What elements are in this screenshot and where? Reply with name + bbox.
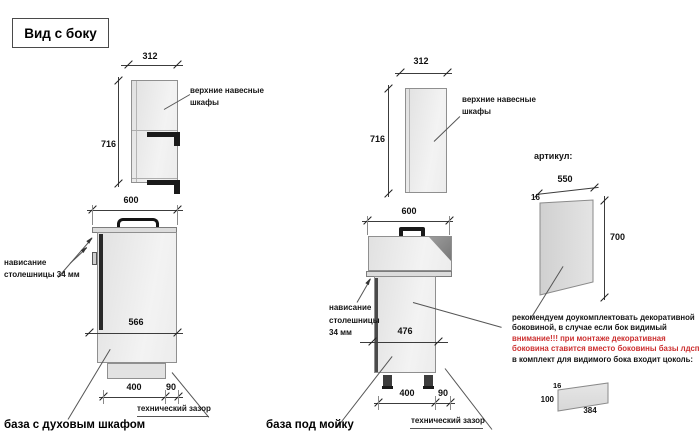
dim-line <box>99 397 183 398</box>
dim-extension <box>178 390 179 404</box>
dim-label-height: 716 <box>94 139 116 149</box>
side-view-drawing: Вид с боку 312 716 верхние навесные шкаф… <box>0 0 700 438</box>
dim-extension <box>177 205 178 225</box>
upper-cabinets-label: верхние навесные шкафы <box>190 85 264 108</box>
caption-oven-base: база с духовым шкафом <box>4 419 145 431</box>
dim-extension <box>378 396 379 410</box>
sink-base-cabinet <box>374 276 436 373</box>
dim-extension <box>103 390 104 404</box>
technical-gap-label: технический зазор <box>137 403 211 415</box>
plinth-box <box>107 363 166 379</box>
overhang-label: нависание столешницы 34 мм <box>4 257 80 281</box>
dim-label-width: 600 <box>123 195 138 205</box>
dim-line <box>118 77 119 187</box>
dim-line <box>374 403 455 404</box>
label-underline <box>410 428 483 429</box>
oven-door-edge <box>99 234 103 330</box>
dim-label-width: 600 <box>401 206 416 216</box>
cabinet-leg <box>424 375 433 386</box>
shelf-line <box>132 178 177 179</box>
note-line-4-warning: боковина ставится вместо боковины базы л… <box>512 344 700 354</box>
dim-label-bottom: 400 <box>126 382 141 392</box>
caption-leader <box>337 356 393 428</box>
note-line-3-warning: внимание!!! при монтаже декоративная <box>512 334 700 344</box>
dim-line <box>87 210 183 211</box>
cabinet-leg-foot <box>382 386 393 389</box>
caption-leader <box>68 349 111 420</box>
dim-label-depth: 476 <box>397 326 412 336</box>
note-line-1: рекомендуем доукомплектовать декоративно… <box>512 313 700 323</box>
cabinet-back-line <box>409 89 410 192</box>
technical-gap-label: технический зазор <box>411 415 485 427</box>
cabinet-leg-foot <box>423 386 434 389</box>
dim-extension <box>450 396 451 410</box>
dim-line <box>85 333 183 334</box>
dim-extension <box>165 390 166 404</box>
dim-label-width: 312 <box>142 51 157 61</box>
dim-line <box>604 196 605 300</box>
dim-label-gap: 90 <box>438 388 448 398</box>
dim-label-plinth-thickness: 16 <box>553 381 561 390</box>
dim-label-panel-width: 550 <box>557 174 572 184</box>
dim-label-height: 716 <box>363 134 385 144</box>
decor-panel-shape <box>535 196 605 300</box>
note-line-2: боковиной, в случае если бок видимый <box>512 323 700 333</box>
dim-line <box>388 85 389 197</box>
dim-label-panel-height: 700 <box>610 232 625 242</box>
recommendation-note: рекомендуем доукомплектовать декоративно… <box>512 313 700 365</box>
dim-label-bottom: 400 <box>399 388 414 398</box>
dim-extension <box>92 205 93 225</box>
dim-label-plinth-height: 100 <box>536 395 554 404</box>
note-line-5: в комплект для видимого бока входит цоко… <box>512 355 700 365</box>
page-title: Вид с боку <box>24 26 96 41</box>
dim-line <box>395 73 452 74</box>
dim-label-width: 312 <box>413 56 428 66</box>
label-underline <box>137 416 209 417</box>
dim-extension <box>435 396 436 410</box>
article-heading: артикул: <box>534 151 572 163</box>
dim-label-plinth-length: 384 <box>583 406 596 415</box>
dim-line <box>362 221 453 222</box>
shelf-bracket <box>174 137 180 146</box>
overhang-label: нависание столешницы 34 мм <box>329 302 380 340</box>
cabinet-leg <box>383 375 392 386</box>
title-box: Вид с боку <box>12 18 109 48</box>
shelf-bracket <box>174 185 180 194</box>
dim-extension <box>367 216 368 235</box>
caption-sink-base: база под мойку <box>266 419 354 431</box>
upper-cabinets-label: верхние навесные шкафы <box>462 94 536 117</box>
dim-extension <box>449 216 450 235</box>
upper-cabinet-middle <box>405 88 447 193</box>
oven-base-cabinet <box>97 232 177 363</box>
overhang-arrow <box>357 279 371 303</box>
dim-label-gap: 90 <box>166 382 176 392</box>
cabinet-back-line <box>136 81 137 182</box>
oven-door-handle <box>92 252 97 265</box>
shelf-line <box>132 130 177 131</box>
dim-label-depth: 566 <box>128 317 143 327</box>
